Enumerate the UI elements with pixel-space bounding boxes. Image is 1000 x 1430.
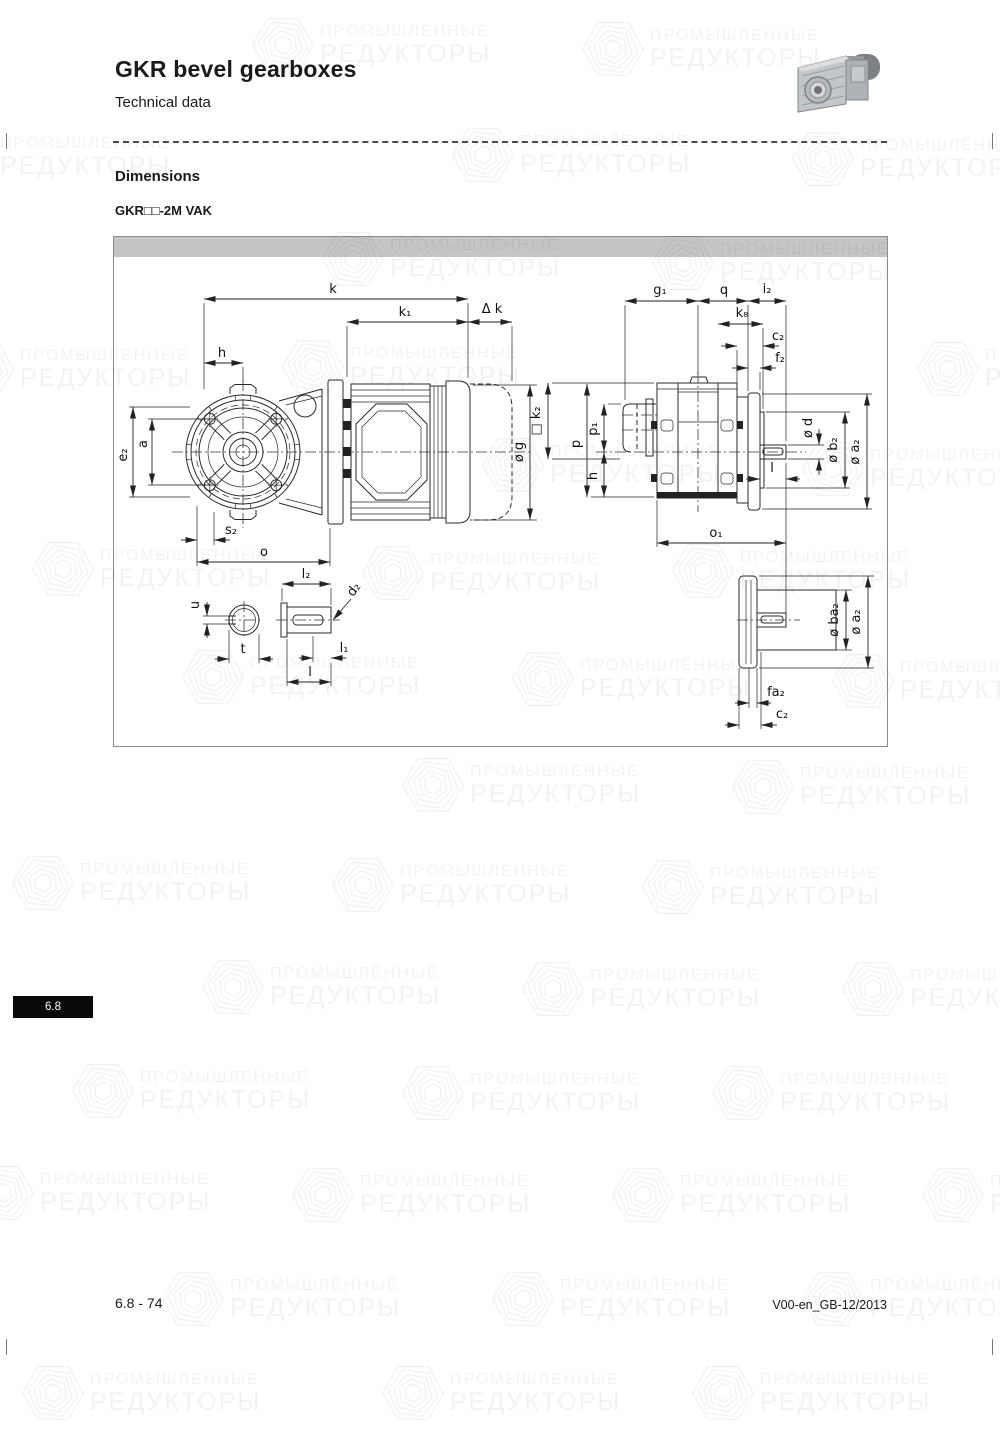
hexagon-logo-icon	[520, 956, 586, 1022]
dim-label-g1: g₁	[653, 283, 666, 298]
hexagon-logo-icon	[0, 336, 16, 402]
watermark: ПРОМЫШЛЕННЫЕ РЕДУКТОРЫ	[380, 1356, 630, 1430]
hexagon-logo-icon	[160, 1266, 226, 1332]
page-subtitle: Technical data	[115, 94, 211, 111]
watermark-line2: РЕДУКТОРЫ	[230, 1296, 401, 1321]
variant-label: GKR□□-2M VAK	[115, 203, 212, 218]
hexagon-logo-icon	[20, 1360, 86, 1426]
hexagon-logo-icon	[610, 1162, 676, 1228]
watermark: ПРОМЫШЛЕННЫЕ РЕДУКТОРЫ	[0, 1156, 220, 1230]
watermark-line1: ПРОМЫШЛЕННЫЕ	[990, 1174, 1000, 1190]
watermark-line1: ПРОМЫШЛЕННЫЕ	[40, 1172, 211, 1188]
dim-label-p1: p₁	[586, 422, 601, 435]
watermark-line2: РЕДУКТОРЫ	[990, 1192, 1000, 1217]
side-view	[596, 372, 806, 613]
watermark-line2: РЕДУКТОРЫ	[860, 156, 1000, 181]
dim-label-l1: l₁	[340, 641, 349, 656]
dim-label-k8: k₈	[736, 306, 749, 321]
shaft-detail: u t l₂ d₂ l₁ l	[188, 567, 364, 686]
dim-label-h: h	[218, 346, 226, 361]
watermark: ПРОМЫШЛЕННЫЕ РЕДУКТОРЫ	[200, 950, 450, 1024]
hexagon-logo-icon	[10, 850, 76, 916]
dim-label-l2: l₂	[302, 567, 311, 582]
watermark: ПРОМЫШЛЕННЫЕ РЕДУКТОРЫ	[520, 952, 770, 1026]
dim-label-oba2: ø ba₂	[827, 603, 842, 637]
watermark-line1: ПРОМЫШЛЕННЫЕ	[590, 968, 761, 984]
watermark-line2: РЕДУКТОРЫ	[590, 986, 761, 1011]
dim-label-l: l	[308, 665, 312, 680]
watermark: ПРОМЫШЛЕННЫЕ РЕДУКТОРЫ	[160, 1262, 410, 1336]
watermark: ПРОМЫШЛЕННЫЕ РЕДУКТОРЫ	[10, 846, 260, 920]
hexagon-logo-icon	[490, 1266, 556, 1332]
watermark: ПРОМЫШЛЕННЫЕ РЕДУКТОРЫ	[710, 1056, 960, 1130]
watermark: ПРОМЫШЛЕННЫЕ РЕДУКТОРЫ	[400, 748, 650, 822]
dim-label-fa2: fa₂	[767, 685, 785, 700]
watermark-line2: РЕДУКТОРЫ	[400, 882, 571, 907]
dim-label-o1: o₁	[709, 526, 722, 541]
watermark-line2: РЕДУКТОРЫ	[985, 366, 1000, 391]
watermark-line2: РЕДУКТОРЫ	[910, 986, 1000, 1011]
watermark: ПРОМЫШЛЕННЫЕ РЕДУКТОРЫ	[450, 118, 700, 192]
watermark-line2: РЕДУКТОРЫ	[270, 984, 441, 1009]
gearbox-photo	[788, 46, 888, 118]
hexagon-logo-icon	[70, 1058, 136, 1124]
hexagon-logo-icon	[915, 336, 981, 402]
output-flange-detail: ø ba₂ ø a₂ fa₂ c₂	[725, 576, 874, 729]
dim-label-dk: Δ k	[482, 302, 503, 317]
dim-label-oa2b: ø a₂	[849, 609, 864, 634]
dim-label-a: a	[136, 440, 151, 448]
watermark-line1: ПРОМЫШЛЕННЫЕ	[230, 1278, 401, 1294]
footer-version: V00-en_GB-12/2013	[587, 1298, 887, 1312]
watermark-line2: РЕДУКТОРЫ	[450, 1390, 621, 1415]
hexagon-logo-icon	[380, 1360, 446, 1426]
dim-label-h2: h	[586, 472, 601, 480]
watermark-line2: РЕДУКТОРЫ	[140, 1088, 311, 1113]
watermark-line1: ПРОМЫШЛЕННЫЕ	[870, 448, 1000, 464]
watermark-line2: РЕДУКТОРЫ	[470, 1090, 641, 1115]
watermark-line1: ПРОМЫШЛЕННЫЕ	[870, 1278, 1000, 1294]
watermark-line1: ПРОМЫШЛЕННЫЕ	[860, 138, 1000, 154]
watermark-line1: ПРОМЫШЛЕННЫЕ	[320, 24, 491, 40]
dim-label-c2: c₂	[772, 329, 784, 344]
hexagon-logo-icon	[640, 854, 706, 920]
hexagon-logo-icon	[710, 1060, 776, 1126]
dim-label-og: ø g	[512, 442, 527, 462]
watermark-line2: РЕДУКТОРЫ	[760, 1390, 931, 1415]
hexagon-logo-icon	[200, 954, 266, 1020]
datasheet-page: { "page": { "title": "GKR bevel gearboxe…	[0, 0, 1000, 1395]
dim-label-c2b: c₂	[776, 707, 788, 722]
dim-label-k1: k₁	[399, 305, 412, 320]
hexagon-logo-icon	[400, 1060, 466, 1126]
watermark-line1: ПРОМЫШЛЕННЫЕ	[270, 966, 441, 982]
watermark-line2: РЕДУКТОРЫ	[900, 678, 1000, 703]
dim-label-o: o	[260, 545, 268, 560]
watermark-line2: РЕДУКТОРЫ	[780, 1090, 951, 1115]
watermark-line2: РЕДУКТОРЫ	[710, 884, 881, 909]
watermark: ПРОМЫШЛЕННЫЕ РЕДУКТОРЫ	[920, 1158, 1000, 1232]
watermark: ПРОМЫШЛЕННЫЕ РЕДУКТОРЫ	[640, 850, 890, 924]
dim-label-d2: d₂	[344, 580, 364, 600]
watermark-line1: ПРОМЫШЛЕННЫЕ	[650, 28, 821, 44]
dim-label-k2: □ k₂	[529, 406, 544, 435]
hexagon-logo-icon	[450, 122, 516, 188]
footer-page-number: 6.8 - 74	[115, 1295, 162, 1311]
watermark-line2: РЕДУКТОРЫ	[470, 782, 641, 807]
hexagon-logo-icon	[730, 754, 796, 820]
dim-label-k: k	[329, 282, 337, 297]
watermark-line2: РЕДУКТОРЫ	[40, 1190, 211, 1215]
watermark-line1: ПРОМЫШЛЕННЫЕ	[910, 968, 1000, 984]
watermark-line2: РЕДУКТОРЫ	[360, 1192, 531, 1217]
crop-mark	[992, 133, 993, 149]
watermark-line1: ПРОМЫШЛЕННЫЕ	[470, 1072, 641, 1088]
crop-mark	[6, 1339, 7, 1355]
watermark-line2: РЕДУКТОРЫ	[870, 1296, 1000, 1321]
watermark-line2: РЕДУКТОРЫ	[800, 784, 971, 809]
hexagon-logo-icon	[790, 126, 856, 192]
dim-label-ob2: ø b₂	[826, 437, 841, 463]
watermark-line1: ПРОМЫШЛЕННЫЕ	[985, 348, 1000, 364]
section-heading: Dimensions	[115, 168, 200, 185]
watermark-line1: ПРОМЫШЛЕННЫЕ	[360, 1174, 531, 1190]
watermark: ПРОМЫШЛЕННЫЕ РЕДУКТОРЫ	[400, 1056, 650, 1130]
watermark-line2: РЕДУКТОРЫ	[680, 1192, 851, 1217]
watermark: ПРОМЫШЛЕННЫЕ РЕДУКТОРЫ	[330, 848, 580, 922]
dim-label-q: q	[720, 283, 728, 298]
watermark: ПРОМЫШЛЕННЫЕ РЕДУКТОРЫ	[610, 1158, 860, 1232]
watermark: ПРОМЫШЛЕННЫЕ РЕДУКТОРЫ	[730, 750, 980, 824]
dim-label-l3: l	[770, 461, 774, 476]
crop-mark	[992, 1339, 993, 1355]
technical-drawing: k k₁ Δ k ø g h a e₂ s₂ o	[113, 236, 886, 745]
dim-label-t: t	[240, 642, 245, 657]
watermark-line1: ПРОМЫШЛЕННЫЕ	[90, 1372, 261, 1388]
dim-label-p: p	[569, 440, 584, 448]
watermark: ПРОМЫШЛЕННЫЕ РЕДУКТОРЫ	[790, 122, 1000, 196]
watermark-line2: РЕДУКТОРЫ	[870, 466, 1000, 491]
watermark: ПРОМЫШЛЕННЫЕ РЕДУКТОРЫ	[290, 1158, 540, 1232]
watermark-line2: РЕДУКТОРЫ	[90, 1390, 261, 1415]
hexagon-logo-icon	[840, 956, 906, 1022]
hexagon-logo-icon	[920, 1162, 986, 1228]
watermark: ПРОМЫШЛЕННЫЕ РЕДУКТОРЫ	[70, 1054, 320, 1128]
watermark-line1: ПРОМЫШЛЕННЫЕ	[470, 764, 641, 780]
dashed-divider	[113, 141, 887, 143]
dim-label-u: u	[188, 601, 203, 609]
dim-label-oa2: ø a₂	[848, 439, 863, 464]
watermark-line1: ПРОМЫШЛЕННЫЕ	[560, 1278, 731, 1294]
hexagon-logo-icon	[0, 1160, 36, 1226]
watermark-line1: ПРОМЫШЛЕННЫЕ	[900, 660, 1000, 676]
watermark-line1: ПРОМЫШЛЕННЫЕ	[80, 862, 251, 878]
dim-label-f2: f₂	[775, 351, 785, 366]
watermark-line2: РЕДУКТОРЫ	[80, 880, 251, 905]
front-view-dimensions: k k₁ Δ k ø g h a e₂ s₂ o	[116, 282, 537, 566]
dim-label-s2: s₂	[225, 523, 237, 538]
hexagon-logo-icon	[30, 536, 96, 602]
watermark-line2: РЕДУКТОРЫ	[520, 152, 691, 177]
watermark-line1: ПРОМЫШЛЕННЫЕ	[140, 1070, 311, 1086]
hexagon-logo-icon	[580, 16, 646, 82]
watermark: ПРОМЫШЛЕННЫЕ РЕДУКТОРЫ	[915, 332, 1000, 406]
watermark-line1: ПРОМЫШЛЕННЫЕ	[680, 1174, 851, 1190]
watermark-line1: ПРОМЫШЛЕННЫЕ	[0, 136, 171, 152]
watermark: ПРОМЫШЛЕННЫЕ РЕДУКТОРЫ	[840, 952, 1000, 1026]
watermark-line1: ПРОМЫШЛЕННЫЕ	[780, 1072, 951, 1088]
crop-mark	[6, 133, 7, 149]
dim-label-e2: e₂	[116, 448, 131, 461]
hexagon-logo-icon	[400, 752, 466, 818]
chapter-tab: 6.8	[13, 996, 93, 1018]
watermark: ПРОМЫШЛЕННЫЕ РЕДУКТОРЫ	[20, 1356, 270, 1430]
watermark-line1: ПРОМЫШЛЕННЫЕ	[400, 864, 571, 880]
watermark-line1: ПРОМЫШЛЕННЫЕ	[710, 866, 881, 882]
side-view-dimensions: g₁ q i₂ k₈ c₂ f₂ □ k₂ p p₁ h ø d	[529, 282, 872, 547]
watermark-line1: ПРОМЫШЛЕННЫЕ	[800, 766, 971, 782]
hexagon-logo-icon	[290, 1162, 356, 1228]
watermark-line1: ПРОМЫШЛЕННЫЕ	[450, 1372, 621, 1388]
watermark: ПРОМЫШЛЕННЫЕ РЕДУКТОРЫ	[690, 1356, 940, 1430]
dim-label-od: ø d	[801, 418, 816, 438]
hexagon-logo-icon	[690, 1360, 756, 1426]
hexagon-logo-icon	[330, 852, 396, 918]
dim-label-i2: i₂	[763, 282, 772, 297]
watermark-line1: ПРОМЫШЛЕННЫЕ	[760, 1372, 931, 1388]
chapter-tab-label: 6.8	[45, 1001, 61, 1013]
page-title: GKR bevel gearboxes	[115, 56, 357, 83]
